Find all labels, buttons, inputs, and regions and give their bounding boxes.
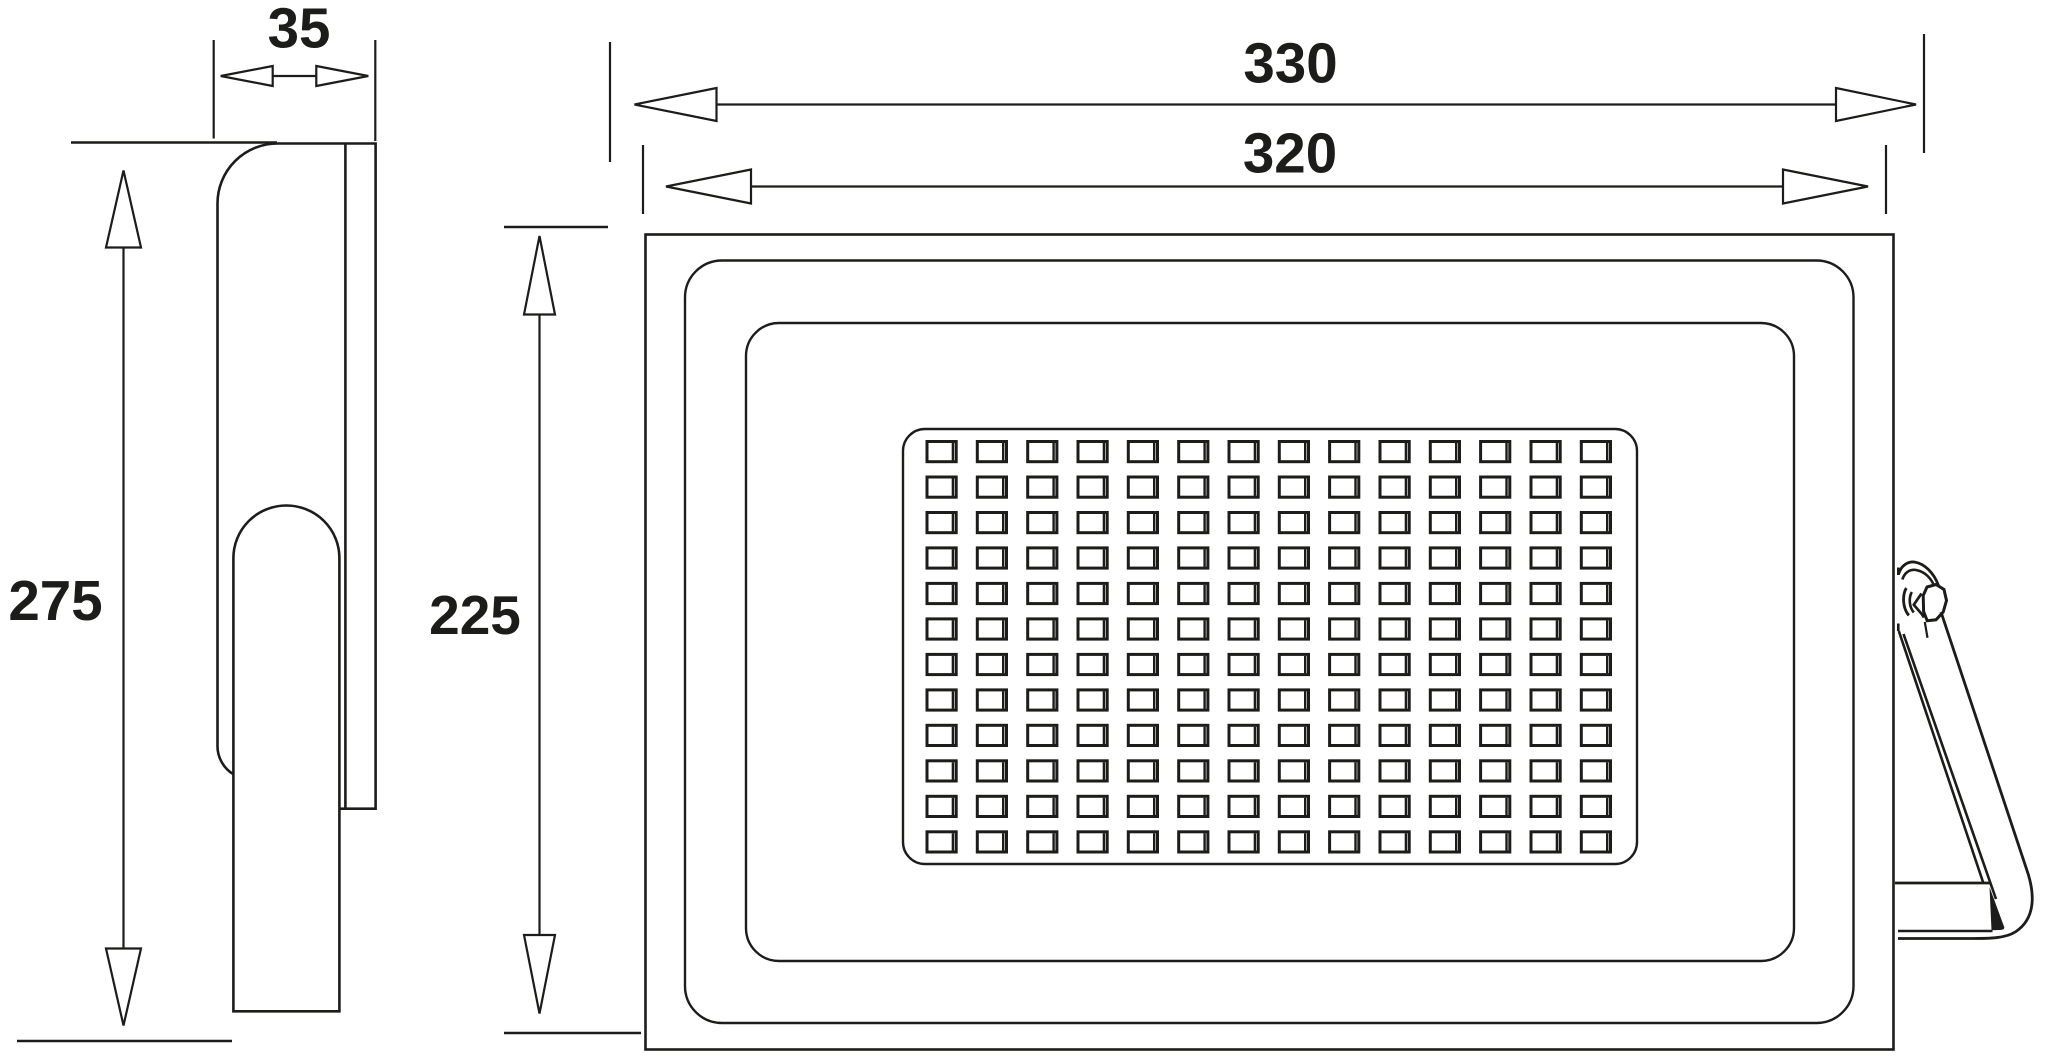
svg-text:330: 330 [1243,32,1337,95]
svg-text:275: 275 [8,569,102,632]
svg-text:225: 225 [429,584,521,646]
svg-text:35: 35 [268,0,331,60]
svg-text:320: 320 [1243,122,1337,185]
